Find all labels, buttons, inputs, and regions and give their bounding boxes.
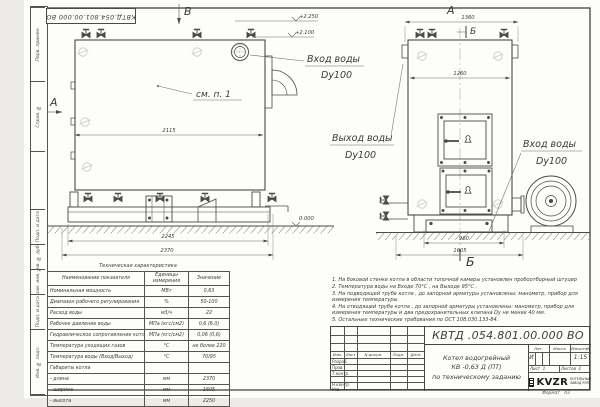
- tb-col-list: Лист: [344, 352, 357, 357]
- sheets-cell: Листов 2: [561, 366, 591, 371]
- drawing-sheet: В А см. п. 1 +2.250 +2.100 0.000 2115 22…: [24, 0, 600, 398]
- tb-col-ndoc: N докум.: [357, 352, 390, 357]
- section-b-top: Б: [470, 27, 476, 37]
- inlet-top-dn: Dy100: [321, 70, 352, 81]
- skid-frame: [68, 192, 270, 222]
- boiler-front-view: [376, 28, 590, 246]
- format-label: Формат А3: [520, 391, 592, 396]
- ground-hatch: [40, 227, 334, 234]
- scale-label: Масштаб: [570, 346, 591, 351]
- view-a-title: А: [446, 4, 455, 17]
- dim-2245: 2245: [161, 234, 175, 240]
- table-row: - длинамм2370: [48, 374, 230, 385]
- frame-column-label: Подп. и дата: [31, 294, 45, 330]
- note-line: 4. На отводящей трубе котла , до запорно…: [332, 304, 590, 317]
- rotated-doc-number: КВТД.054.801.00.000 ВО: [46, 8, 136, 24]
- title-block: Изм. Лист N докум. Подп. Дата Разраб. Пр…: [330, 326, 590, 390]
- lit-label: Лит.: [528, 346, 549, 351]
- dim-1260: 1260: [453, 71, 467, 77]
- frame-side-band: Перв. примен. Справ. № Подп. и дата Инв.…: [30, 6, 48, 396]
- dim-1360: 1360: [461, 15, 475, 21]
- frame-column-label: Инв. № дубл.: [31, 244, 45, 270]
- dim-2370: 2370: [160, 248, 174, 254]
- table-row: Номинальная мощностьМВт0,63: [48, 286, 230, 297]
- tech-specs-table: Наименование показателя Единицы измерени…: [47, 271, 230, 407]
- note-line: 1. На боковой стенке котла в области топ…: [332, 277, 590, 283]
- table-row: - ширинамм1605: [48, 385, 230, 396]
- tb-col-podp: Подп.: [390, 352, 407, 357]
- inlet-top-label: Вход воды: [307, 54, 361, 65]
- table-row: - высотамм2250: [48, 396, 230, 407]
- tb-col-izm: Изм.: [331, 352, 344, 357]
- see-note-label: см. п. 1: [196, 90, 231, 100]
- boiler-side-view: [40, 30, 334, 234]
- logo-icon: [529, 378, 534, 387]
- tb-role-tkontr: Т.контр.: [332, 371, 357, 376]
- table-row: Рабочее давление водыМПа (кгс/см2)0,6 (6…: [48, 319, 230, 330]
- elevation-zero: 0.000: [299, 216, 315, 222]
- tech-table-title: Техническая характеристика: [47, 263, 229, 269]
- dim-2115: 2115: [162, 128, 176, 134]
- scale-value: 1:15: [570, 354, 591, 361]
- ground-hatch-right: [376, 233, 590, 240]
- tb-role-prov: Пров.: [332, 365, 357, 370]
- table-row: Температура воды (Вход/Выход)°С70/95: [48, 352, 230, 363]
- frame-column-label: Взам. инв. №: [31, 269, 45, 295]
- tb-role-razrab: Разраб.: [332, 359, 357, 364]
- lit-value: И: [528, 354, 535, 361]
- product-title: Котел водогрейный КВ -0,63 Д (ПТ) по тех…: [424, 345, 528, 391]
- tb-col-data: Дата: [407, 352, 424, 357]
- inlet-right-dn: Dy100: [536, 156, 567, 167]
- sheet-cell: Лист 1: [530, 366, 558, 371]
- table-header-row: Наименование показателя Единицы измерени…: [48, 272, 230, 286]
- table-row: Диапазон рабочего регулирования%50-100: [48, 297, 230, 308]
- frame-column-label: Справ. №: [31, 81, 45, 152]
- logo-caption: КОТЕЛЬНЫЙЗАВОД РЭП: [570, 378, 591, 386]
- note-line: 2. Температура воды на Входе 70°С , на В…: [332, 284, 590, 290]
- frame-column-label: Подп. и дата: [31, 209, 45, 245]
- section-b-bottom: Б: [466, 254, 475, 269]
- table-row: Температура уходящих газов°Сне более 220: [48, 341, 230, 352]
- table-row: Габариты котла: [48, 363, 230, 374]
- doc-number: КВТД .054.801.00.000 ВО: [424, 327, 591, 345]
- manufacturer-logo: KVZR КОТЕЛЬНЫЙЗАВОД РЭП: [528, 372, 591, 391]
- outlet-dn: Dy100: [345, 150, 376, 161]
- front-base: [414, 215, 508, 232]
- blower-fan: [512, 176, 576, 233]
- outlet-label: Выход воды: [332, 133, 393, 144]
- dim-960: 960: [459, 236, 470, 242]
- view-marker-a: А: [49, 96, 58, 109]
- frame-column-label: Инв. № подл.: [31, 329, 45, 395]
- mass-label: Масса: [549, 346, 570, 351]
- outlet-elbow-pipe: [265, 56, 297, 108]
- note-line: 3. На подводящей трубе котла , до запорн…: [332, 291, 590, 304]
- elevation-2100: +2.100: [295, 30, 315, 36]
- notes-block: 1. На боковой стенке котла в области топ…: [332, 277, 590, 324]
- elevation-2250: +2.250: [299, 14, 319, 20]
- tb-role-utv: Утв.: [332, 387, 357, 392]
- table-row: Расход водым3/ч22: [48, 308, 230, 319]
- table-row: Гидравлическое сопротивление котлаМПа (к…: [48, 330, 230, 341]
- logo-text: KVZR: [536, 377, 568, 388]
- inlet-right-label: Вход воды: [523, 139, 577, 150]
- frame-column-label: Перв. примен.: [31, 7, 45, 82]
- view-marker-b: В: [184, 5, 192, 18]
- note-line: 5. Остальные технические требования по О…: [332, 317, 590, 323]
